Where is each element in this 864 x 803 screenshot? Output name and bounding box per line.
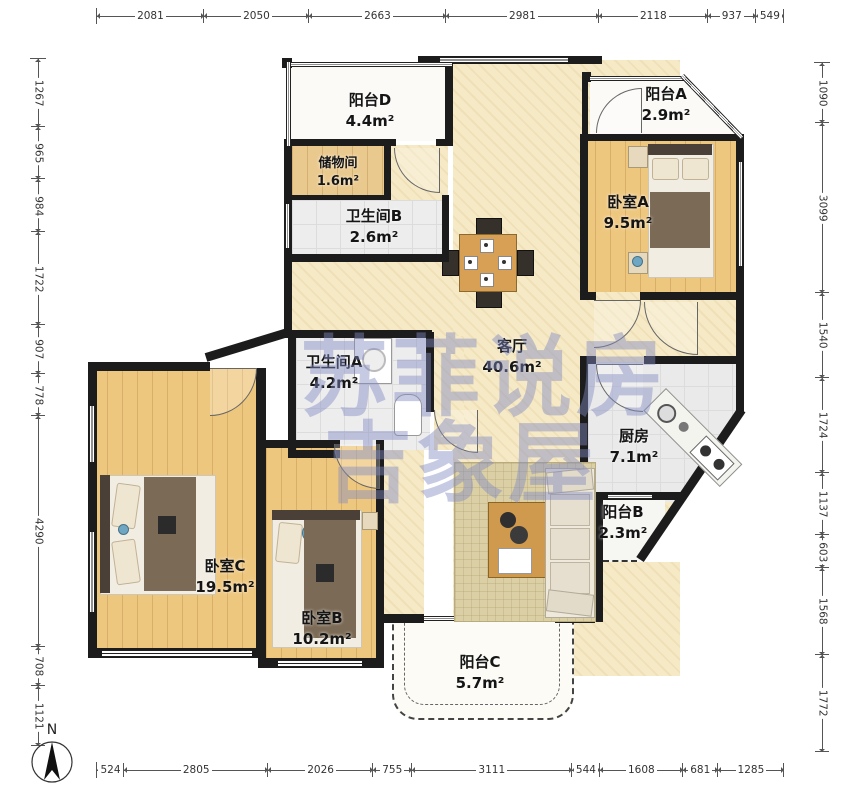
dimension-row-bottom: 52428052026755311154416086811285 bbox=[96, 762, 784, 778]
floor-plan-page: 20812050266329812118937549 5242805202675… bbox=[0, 0, 864, 803]
dimension-segment: 2081 bbox=[96, 8, 204, 24]
dimension-value: 1568 bbox=[817, 596, 828, 627]
dimension-segment: 549 bbox=[756, 8, 784, 24]
chair-icon bbox=[476, 218, 502, 235]
sofa-cushion bbox=[550, 562, 590, 594]
dimension-segment: 1772 bbox=[814, 655, 830, 752]
blanket-icon bbox=[650, 192, 710, 248]
dimension-segment: 2805 bbox=[124, 762, 268, 778]
wall bbox=[284, 254, 449, 262]
dimension-value: 549 bbox=[758, 11, 782, 22]
dimension-value: 3111 bbox=[476, 765, 507, 776]
dimension-segment: 778 bbox=[30, 374, 46, 416]
dimension-segment: 1568 bbox=[814, 568, 830, 654]
dimension-value: 2118 bbox=[638, 11, 669, 22]
faucet-icon bbox=[677, 420, 691, 434]
pillow-icon bbox=[682, 158, 709, 180]
dimension-value: 3099 bbox=[817, 193, 828, 224]
wall bbox=[736, 296, 744, 364]
dimension-row-left: 1267965984172290777842907081121 bbox=[30, 58, 46, 746]
dimension-segment: 708 bbox=[30, 647, 46, 685]
wall bbox=[445, 60, 453, 146]
chair-icon bbox=[517, 250, 534, 276]
compass-north-label: N bbox=[24, 722, 80, 738]
wall bbox=[582, 78, 588, 136]
dimension-segment: 1724 bbox=[814, 378, 830, 473]
dimension-segment: 4290 bbox=[30, 416, 46, 647]
dimension-value: 1267 bbox=[33, 78, 44, 109]
dimension-segment: 524 bbox=[96, 762, 124, 778]
dimension-segment: 1722 bbox=[30, 232, 46, 325]
plate-icon bbox=[498, 256, 512, 270]
dimension-value: 2081 bbox=[135, 11, 166, 22]
dimension-value: 1540 bbox=[817, 320, 828, 351]
dimension-value: 1090 bbox=[817, 78, 828, 109]
window bbox=[286, 62, 452, 67]
dimension-segment: 1608 bbox=[600, 762, 683, 778]
dimension-segment: 984 bbox=[30, 179, 46, 232]
window bbox=[608, 494, 652, 499]
room-label-bedroom-a: 卧室A9.5m² bbox=[604, 192, 653, 234]
wall bbox=[288, 195, 388, 200]
dimension-segment: 1137 bbox=[814, 473, 830, 536]
lamp-icon bbox=[632, 256, 643, 267]
dimension-value: 708 bbox=[33, 654, 44, 678]
plate-icon bbox=[480, 239, 494, 253]
wall bbox=[384, 139, 391, 200]
dimension-value: 755 bbox=[380, 765, 404, 776]
dimension-segment: 603 bbox=[814, 535, 830, 568]
dimension-segment: 2981 bbox=[446, 8, 599, 24]
dimension-segment: 907 bbox=[30, 325, 46, 374]
dimension-segment: 2026 bbox=[268, 762, 372, 778]
window bbox=[285, 204, 290, 248]
bed-headboard bbox=[272, 510, 360, 520]
plate-icon bbox=[480, 273, 494, 287]
room-label-balcony-d: 阳台D4.4m² bbox=[346, 90, 395, 132]
lamp-icon bbox=[118, 524, 129, 535]
decor-icon bbox=[316, 564, 334, 582]
wall bbox=[644, 356, 744, 364]
window bbox=[89, 532, 95, 612]
dimension-value: 1772 bbox=[817, 688, 828, 719]
dimension-row-top: 20812050266329812118937549 bbox=[96, 8, 784, 24]
chair-icon bbox=[476, 291, 502, 308]
room-label-balcony-b: 阳台B2.3m² bbox=[599, 502, 648, 544]
wall bbox=[436, 139, 448, 146]
window bbox=[102, 650, 252, 657]
nightstand-icon bbox=[628, 146, 648, 168]
room-label-bathroom-b: 卫生间B2.6m² bbox=[346, 206, 402, 248]
dimension-value: 965 bbox=[33, 141, 44, 165]
dimension-value: 681 bbox=[688, 765, 712, 776]
room-label-bedroom-b: 卧室B10.2m² bbox=[292, 608, 351, 650]
wall bbox=[378, 614, 424, 623]
room-label-balcony-a: 阳台A2.9m² bbox=[642, 84, 691, 126]
dimension-segment: 1090 bbox=[814, 62, 830, 123]
bed-headboard bbox=[100, 475, 110, 593]
dimension-segment: 3099 bbox=[814, 123, 830, 293]
window bbox=[278, 660, 362, 667]
dimension-segment: 755 bbox=[373, 762, 412, 778]
dimension-value: 1285 bbox=[736, 765, 767, 776]
window bbox=[738, 162, 743, 266]
sink-icon bbox=[653, 400, 680, 427]
compass-icon bbox=[29, 739, 75, 785]
wall bbox=[426, 332, 434, 412]
dimension-segment: 937 bbox=[708, 8, 756, 24]
wall bbox=[736, 356, 744, 414]
wall bbox=[288, 330, 296, 458]
room-label-bedroom-c: 卧室C19.5m² bbox=[195, 556, 254, 598]
dimension-segment: 1285 bbox=[718, 762, 784, 778]
window bbox=[440, 57, 568, 63]
blanket-icon bbox=[144, 477, 196, 591]
sofa-cushion bbox=[550, 528, 590, 560]
decor-icon bbox=[158, 516, 176, 534]
dimension-segment: 965 bbox=[30, 127, 46, 179]
dimension-segment: 1540 bbox=[814, 293, 830, 378]
dimension-value: 2026 bbox=[305, 765, 336, 776]
dimension-value: 778 bbox=[33, 383, 44, 407]
dimension-value: 984 bbox=[33, 194, 44, 218]
dimension-segment: 2663 bbox=[309, 8, 446, 24]
hallway-corridor bbox=[292, 260, 453, 336]
dimension-value: 1722 bbox=[33, 263, 44, 294]
wall bbox=[258, 440, 340, 448]
dimension-value: 1137 bbox=[817, 489, 828, 520]
dimension-value: 603 bbox=[817, 540, 828, 564]
dimension-value: 544 bbox=[574, 765, 598, 776]
dimension-value: 1608 bbox=[626, 765, 657, 776]
wall bbox=[284, 139, 396, 146]
hallway-lower bbox=[384, 450, 424, 622]
dimension-segment: 2118 bbox=[599, 8, 708, 24]
toilet-icon bbox=[394, 394, 422, 436]
window bbox=[286, 62, 291, 146]
room-label-living-room: 客厅40.6m² bbox=[482, 336, 541, 378]
decor-bowl-icon bbox=[510, 526, 528, 544]
window bbox=[590, 76, 686, 81]
dimension-value: 2663 bbox=[362, 11, 393, 22]
dimension-segment: 681 bbox=[683, 762, 718, 778]
wall bbox=[256, 368, 266, 658]
tray-icon bbox=[498, 548, 532, 574]
dimension-value: 2050 bbox=[241, 11, 272, 22]
room-label-kitchen: 厨房7.1m² bbox=[610, 426, 659, 468]
compass: N bbox=[24, 722, 80, 789]
room-label-balcony-c: 阳台C5.7m² bbox=[456, 652, 505, 694]
dimension-value: 2981 bbox=[507, 11, 538, 22]
dimension-segment: 2050 bbox=[204, 8, 309, 24]
dimension-row-right: 1090309915401724113760315681772 bbox=[814, 62, 830, 752]
pillow-icon bbox=[652, 158, 679, 180]
dimension-value: 524 bbox=[98, 765, 122, 776]
nightstand-icon bbox=[362, 512, 378, 530]
dimension-value: 4290 bbox=[33, 516, 44, 547]
window bbox=[89, 406, 95, 462]
dimension-value: 2805 bbox=[181, 765, 212, 776]
room-label-bathroom-a: 卫生间A4.2m² bbox=[306, 352, 363, 394]
wall bbox=[88, 362, 210, 371]
dimension-value: 1724 bbox=[817, 410, 828, 441]
dimension-segment: 3111 bbox=[412, 762, 572, 778]
plate-icon bbox=[464, 256, 478, 270]
dimension-segment: 1267 bbox=[30, 58, 46, 127]
dimension-segment: 544 bbox=[572, 762, 600, 778]
decor-bowl-icon bbox=[500, 512, 516, 528]
wall bbox=[580, 134, 744, 141]
bed-headboard bbox=[648, 144, 712, 155]
washing-machine-door bbox=[362, 348, 386, 372]
wall bbox=[292, 330, 432, 338]
wall bbox=[580, 134, 588, 300]
pillow-icon bbox=[275, 522, 303, 564]
floor-plan-canvas: 阳台D4.4m² 储物间1.6m² 卫生间B2.6m² 阳台A2.9m² 卧室A… bbox=[88, 54, 764, 754]
sofa-cushion bbox=[550, 494, 590, 526]
room-label-storage: 储物间1.6m² bbox=[317, 155, 359, 191]
wall bbox=[284, 258, 292, 338]
wall bbox=[640, 292, 744, 300]
dimension-value: 937 bbox=[720, 11, 744, 22]
dimension-value: 907 bbox=[33, 338, 44, 362]
wall bbox=[442, 195, 449, 261]
wall bbox=[205, 329, 288, 362]
